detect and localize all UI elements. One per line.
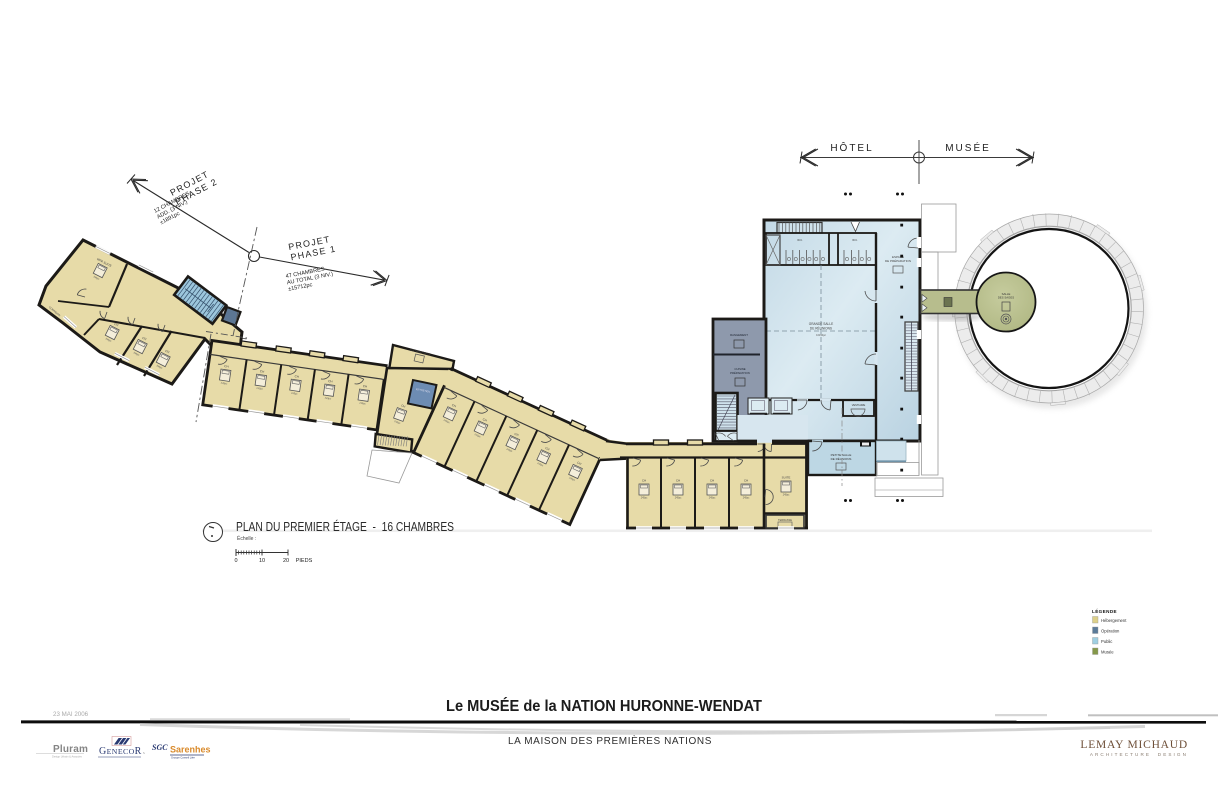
svg-text:PLAN DU PREMIER ÉTAGE - 16 C: PLAN DU PREMIER ÉTAGE - 16 CHAMBRES bbox=[236, 519, 454, 534]
svg-text:Échelle :: Échelle : bbox=[237, 535, 256, 542]
svg-text:Groupe Conseil Ltée: Groupe Conseil Ltée bbox=[171, 756, 195, 760]
svg-text:CH: CH bbox=[294, 374, 299, 379]
svg-text:CH: CH bbox=[363, 384, 368, 389]
svg-text:245pc: 245pc bbox=[743, 497, 750, 500]
svg-text:20: 20 bbox=[283, 558, 289, 564]
svg-text:0: 0 bbox=[234, 558, 237, 564]
svg-text:LÉGENDE: LÉGENDE bbox=[1092, 607, 1117, 614]
svg-text:GENECOR s: GENECOR s bbox=[99, 746, 145, 757]
svg-text:Sarenhes: Sarenhes bbox=[170, 745, 211, 755]
svg-text:DES SAGES: DES SAGES bbox=[998, 296, 1014, 300]
svg-text:Design Urbain & Associés: Design Urbain & Associés bbox=[52, 755, 83, 759]
svg-text:245pc: 245pc bbox=[709, 497, 716, 500]
svg-text:MUSÉE: MUSÉE bbox=[945, 141, 991, 154]
svg-text:W.C.: W.C. bbox=[797, 238, 803, 242]
svg-text:CH: CH bbox=[744, 479, 748, 483]
svg-text:ARCHITECTURE DESIGN: ARCHITECTURE DESIGN bbox=[1090, 752, 1188, 757]
svg-text:±2150pc: ±2150pc bbox=[816, 333, 827, 337]
svg-text:245pc: 245pc bbox=[641, 497, 648, 500]
svg-text:CH: CH bbox=[676, 479, 680, 483]
svg-text:CH: CH bbox=[328, 379, 333, 384]
svg-text:W.C.: W.C. bbox=[852, 238, 858, 242]
svg-text:Opération: Opération bbox=[1101, 629, 1120, 634]
svg-text:245pc: 245pc bbox=[675, 497, 682, 500]
svg-text:SUITE: SUITE bbox=[782, 476, 791, 480]
svg-text:Musée: Musée bbox=[1101, 650, 1114, 655]
svg-text:CH: CH bbox=[642, 479, 646, 483]
svg-text:SGC: SGC bbox=[152, 743, 168, 752]
svg-text:GRANDE SALLE: GRANDE SALLE bbox=[809, 322, 833, 326]
svg-text:TERRASSE: TERRASSE bbox=[778, 518, 792, 522]
svg-text:LA MAISON DES PREMIÈRES NATION: LA MAISON DES PREMIÈRES NATIONS bbox=[508, 734, 712, 747]
svg-text:PRÉPARATION: PRÉPARATION bbox=[730, 370, 750, 375]
svg-text:Le MUSÉE de la NATION HURONNE-: Le MUSÉE de la NATION HURONNE-WENDAT bbox=[446, 696, 762, 715]
svg-text:Public: Public bbox=[1101, 639, 1112, 644]
svg-text:10: 10 bbox=[259, 558, 265, 564]
svg-text:23 MAI 2006: 23 MAI 2006 bbox=[53, 711, 89, 718]
svg-text:DE PRÉPARATION: DE PRÉPARATION bbox=[885, 258, 911, 263]
svg-text:245pc: 245pc bbox=[783, 494, 790, 497]
svg-text:DE RÉUNIONS: DE RÉUNIONS bbox=[831, 456, 852, 461]
svg-text:CH: CH bbox=[224, 364, 229, 369]
svg-text:CH: CH bbox=[710, 479, 714, 483]
svg-text:HÔTEL: HÔTEL bbox=[830, 141, 873, 154]
svg-text:RANGEMENT: RANGEMENT bbox=[730, 333, 748, 337]
svg-text:CH: CH bbox=[260, 369, 265, 374]
svg-text:DE RÉUNIONS: DE RÉUNIONS bbox=[810, 326, 832, 331]
svg-text:LEMAY MICHAUD: LEMAY MICHAUD bbox=[1080, 739, 1188, 751]
svg-text:PIEDS: PIEDS bbox=[296, 558, 313, 564]
svg-text:VESTIAIRE: VESTIAIRE bbox=[852, 403, 866, 407]
svg-text:Hébergement: Hébergement bbox=[1101, 618, 1127, 623]
